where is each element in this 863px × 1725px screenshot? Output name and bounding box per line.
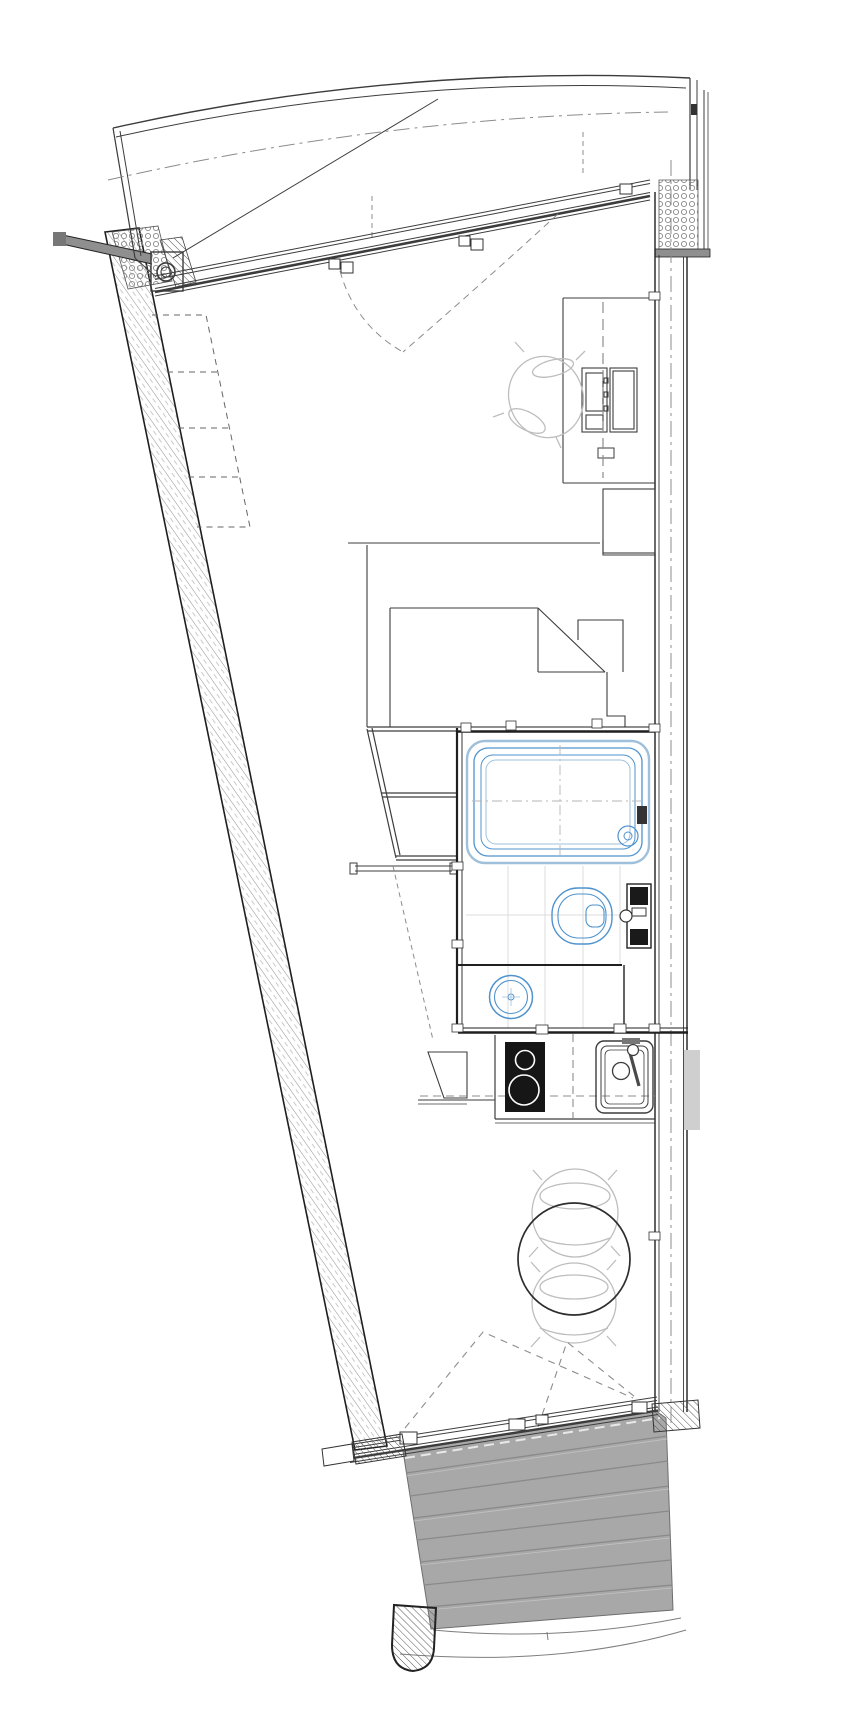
bathtub — [467, 741, 649, 863]
tub-faucet — [637, 806, 647, 824]
bed — [348, 540, 655, 727]
left-wall — [53, 226, 387, 1450]
wall-cistern — [620, 884, 651, 948]
floor-plan — [0, 0, 863, 1725]
kitchen-sink — [596, 1038, 653, 1113]
balcony — [113, 75, 708, 291]
toilet — [552, 888, 612, 944]
window-band-top — [155, 180, 650, 296]
entry-door-swing — [405, 1332, 635, 1428]
dining-table — [518, 1203, 630, 1315]
bathroom-tiles — [466, 866, 650, 1028]
sill-bottom-right — [652, 1400, 700, 1432]
desk-handle — [598, 448, 614, 458]
dining-chair-bottom — [531, 1260, 616, 1347]
nightstand — [603, 489, 655, 553]
desk-zone — [563, 298, 655, 553]
wardrobe-door-swing — [393, 866, 433, 1040]
blanket-fold — [538, 608, 605, 672]
washbasin — [490, 976, 533, 1019]
sink-drain — [613, 1063, 630, 1080]
balcony-diagonal-brace — [173, 99, 438, 258]
cap-end — [53, 232, 66, 246]
wardrobe — [367, 727, 458, 860]
terrace-steps — [392, 1411, 686, 1671]
cooktop — [505, 1042, 545, 1112]
wall-shelf — [350, 863, 457, 874]
floor-plan-canvas — [0, 0, 863, 1725]
desk — [582, 368, 637, 432]
desk-chair — [493, 342, 594, 448]
wall-cap-right — [655, 249, 710, 257]
insulation-top-right — [659, 180, 698, 250]
balcony-centerline — [108, 112, 668, 240]
neighbor-wall-shade — [684, 1050, 700, 1130]
kitchen-cabinet-end — [428, 1052, 467, 1098]
right-wall — [652, 180, 710, 1432]
sink-faucet — [630, 1053, 639, 1086]
column — [392, 1605, 436, 1671]
footing-left — [322, 1444, 354, 1466]
